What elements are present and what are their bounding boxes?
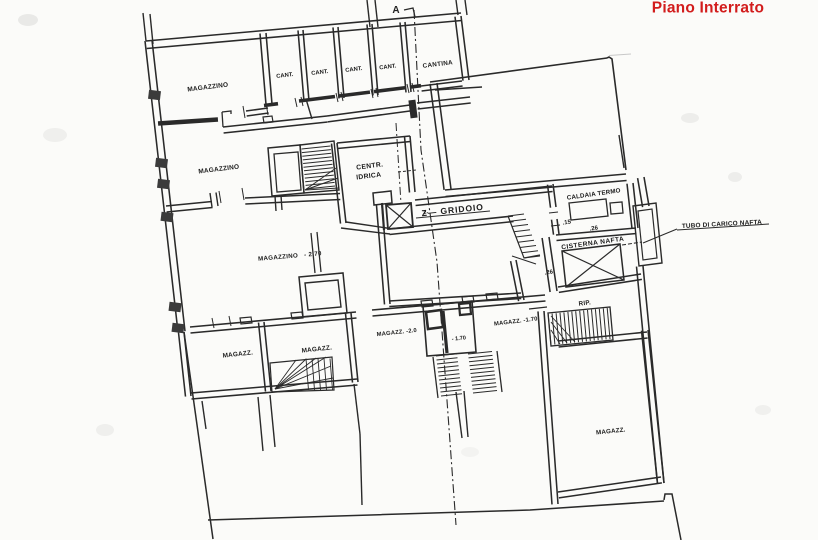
svg-text:.26: .26 xyxy=(544,269,554,276)
svg-text:RIP.: RIP. xyxy=(578,299,591,307)
svg-text:.15: .15 xyxy=(562,219,572,226)
svg-text:Piano Interrato: Piano Interrato xyxy=(652,0,764,17)
svg-text:A: A xyxy=(392,5,399,16)
